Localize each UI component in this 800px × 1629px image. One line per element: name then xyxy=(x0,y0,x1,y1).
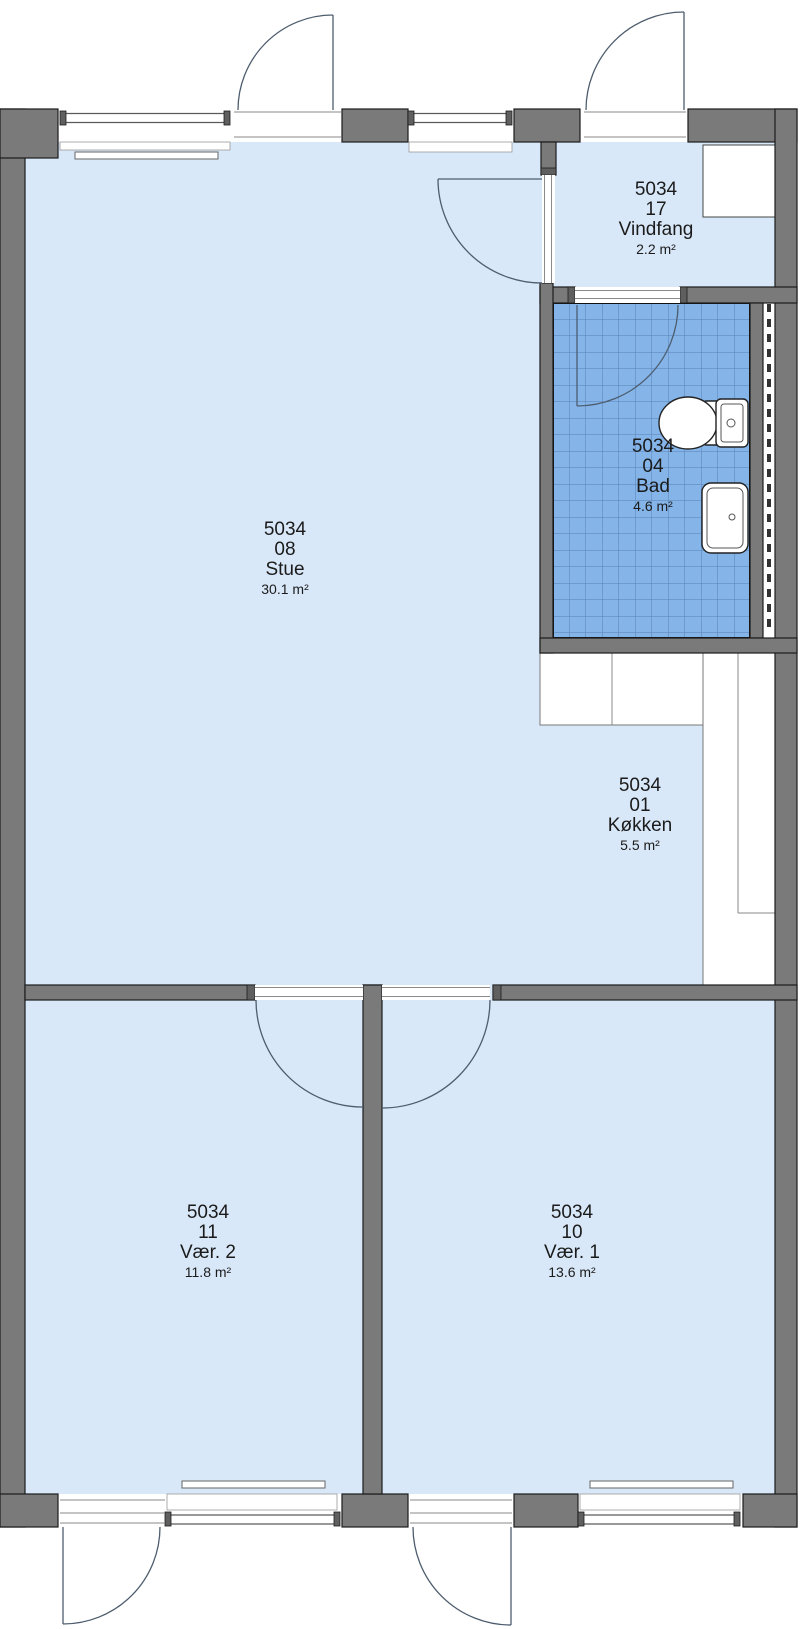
bedroom-1-exterior-door xyxy=(410,1500,512,1625)
bathroom-floor-tiles xyxy=(553,303,750,638)
floor-plan-drawing xyxy=(0,0,800,1629)
window-top-middle xyxy=(408,111,512,152)
door-swing-arc xyxy=(586,12,684,110)
window-top-left xyxy=(60,111,230,150)
radiator xyxy=(590,1481,733,1488)
terrace-door xyxy=(234,15,341,137)
window-bottom-right xyxy=(578,1494,740,1526)
wardrobe-cabinet xyxy=(703,145,775,217)
window-bottom-left xyxy=(165,1494,340,1526)
door-swing-arc xyxy=(238,15,333,110)
bedroom-2-exterior-door xyxy=(60,1500,165,1624)
radiator xyxy=(182,1481,325,1488)
entrance-door xyxy=(584,12,686,137)
radiator xyxy=(75,152,218,159)
duct-shaft xyxy=(763,300,775,638)
floor-plan: 5034 08 Stue 30.1 m² 5034 17 Vindfang 2.… xyxy=(0,0,800,1629)
door-swing-arc xyxy=(63,1527,160,1624)
door-swing-arc xyxy=(413,1527,511,1625)
toilet-icon xyxy=(659,397,748,449)
sink-icon xyxy=(702,483,748,553)
